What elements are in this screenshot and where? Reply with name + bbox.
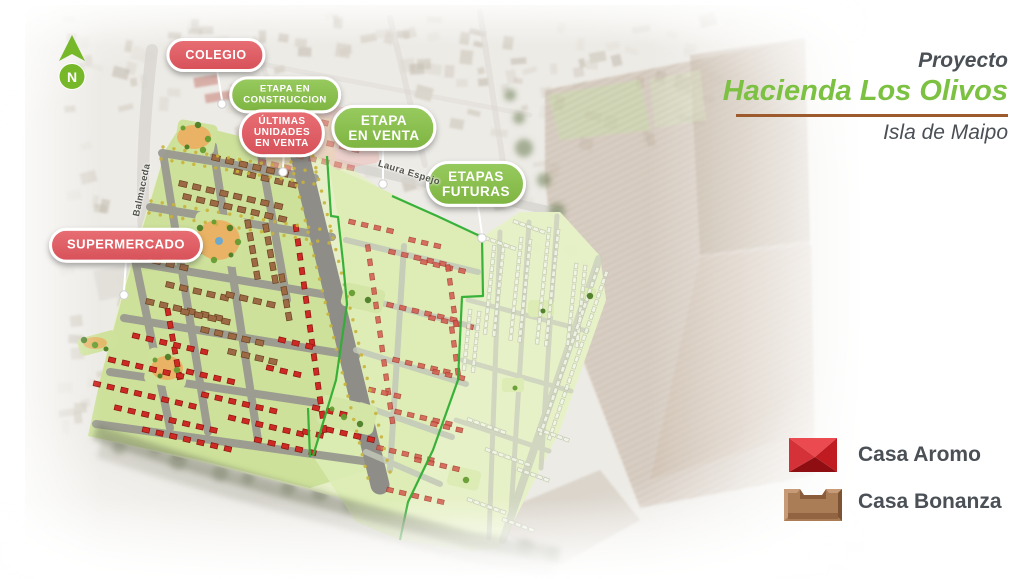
ultimas-unidades-label-pill: ÚLTIMAS UNIDADES EN VENTA (239, 109, 325, 157)
casa-bonanza-roof-icon (784, 483, 842, 521)
supermercado-label-pill: SUPERMERCADO (49, 228, 203, 263)
colegio-label-pill: COLEGIO (166, 38, 265, 72)
connector-dot (279, 168, 287, 176)
legend-label: Casa Aromo (858, 443, 981, 467)
legend-item-casa-bonanza: Casa Bonanza (784, 482, 1002, 522)
legend-label: Casa Bonanza (858, 490, 1002, 514)
project-kicker: Proyecto (723, 49, 1008, 73)
project-title-block: Proyecto Hacienda Los Olivos Isla de Mai… (723, 49, 1008, 145)
legend-item-casa-aromo: Casa Aromo (784, 435, 1002, 475)
north-arrow-icon (52, 34, 92, 64)
etapa-en-venta-label-pill: ETAPA EN VENTA (331, 105, 436, 151)
north-letter: N (59, 63, 86, 90)
connector-dot (218, 100, 226, 108)
legend: Casa Aromo Casa Bonanza (784, 435, 1002, 529)
etapas-futuras-label-pill: ETAPAS FUTURAS (426, 161, 526, 207)
connector-dot (120, 291, 128, 299)
connector-dot (379, 180, 387, 188)
project-location: Isla de Maipo (723, 121, 1008, 145)
north-indicator: N (52, 34, 92, 86)
masterplan-poster: N COLEGIO ETAPA EN CONSTRUCCION ÚLTIMAS … (0, 0, 1024, 579)
etapa-construccion-label-pill: ETAPA EN CONSTRUCCION (229, 76, 341, 113)
casa-aromo-roof-icon (789, 438, 837, 472)
project-name: Hacienda Los Olivos (723, 75, 1008, 108)
title-divider (736, 114, 1008, 117)
connector-dot (478, 234, 486, 242)
